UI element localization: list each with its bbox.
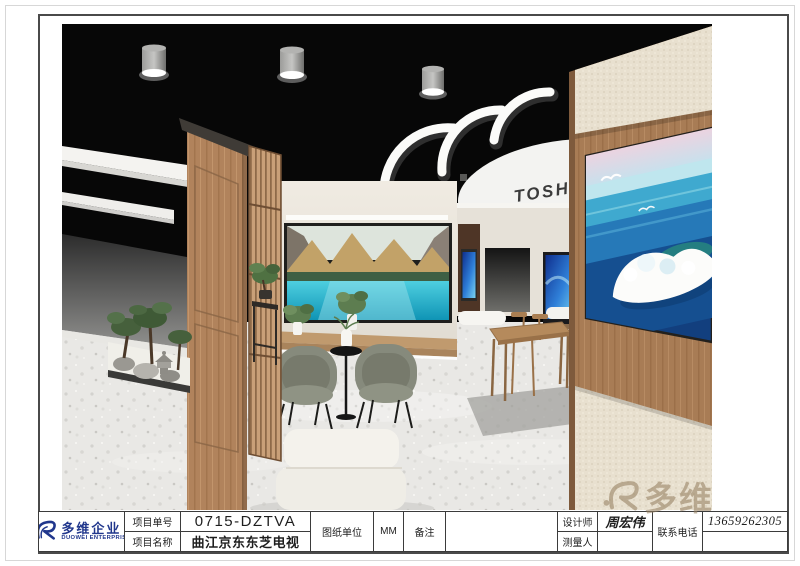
title-block: 多维企业 DUOWEI ENTERPRISE 项目单号 0715-DZTVA 图… — [38, 511, 788, 552]
drawing-unit-value: MM — [374, 512, 404, 552]
project-no-value: 0715-DZTVA — [181, 512, 311, 532]
designer-label: 设计师 — [558, 512, 598, 532]
surveyor-label: 测量人 — [558, 532, 598, 552]
phone-empty-cell — [703, 532, 788, 552]
phone-number: 13659262305 — [703, 512, 788, 532]
showroom-render: TOSHIBA — [62, 24, 712, 510]
company-name-cn: 多维企业 — [61, 522, 121, 535]
phone-label: 联系电话 — [653, 512, 703, 552]
company-name-en: DUOWEI ENTERPRISE — [61, 536, 124, 542]
remark-label: 备注 — [404, 512, 446, 552]
project-name-value: 曲江京东东芝电视 — [181, 532, 311, 552]
project-name-label: 项目名称 — [125, 532, 181, 552]
drawing-sheet: { "sheet": { "company": { "name_cn": "多维… — [0, 0, 800, 566]
company-logo-cell: 多维企业 DUOWEI ENTERPRISE — [39, 512, 125, 552]
drawing-unit-label: 图纸单位 — [311, 512, 374, 552]
surveyor-name — [598, 532, 653, 552]
project-no-label: 项目单号 — [125, 512, 181, 532]
duowei-logo-icon — [39, 516, 59, 547]
wood-partition-wall — [179, 118, 258, 510]
designer-name: 周宏伟 — [598, 512, 653, 532]
remark-value — [446, 512, 558, 552]
